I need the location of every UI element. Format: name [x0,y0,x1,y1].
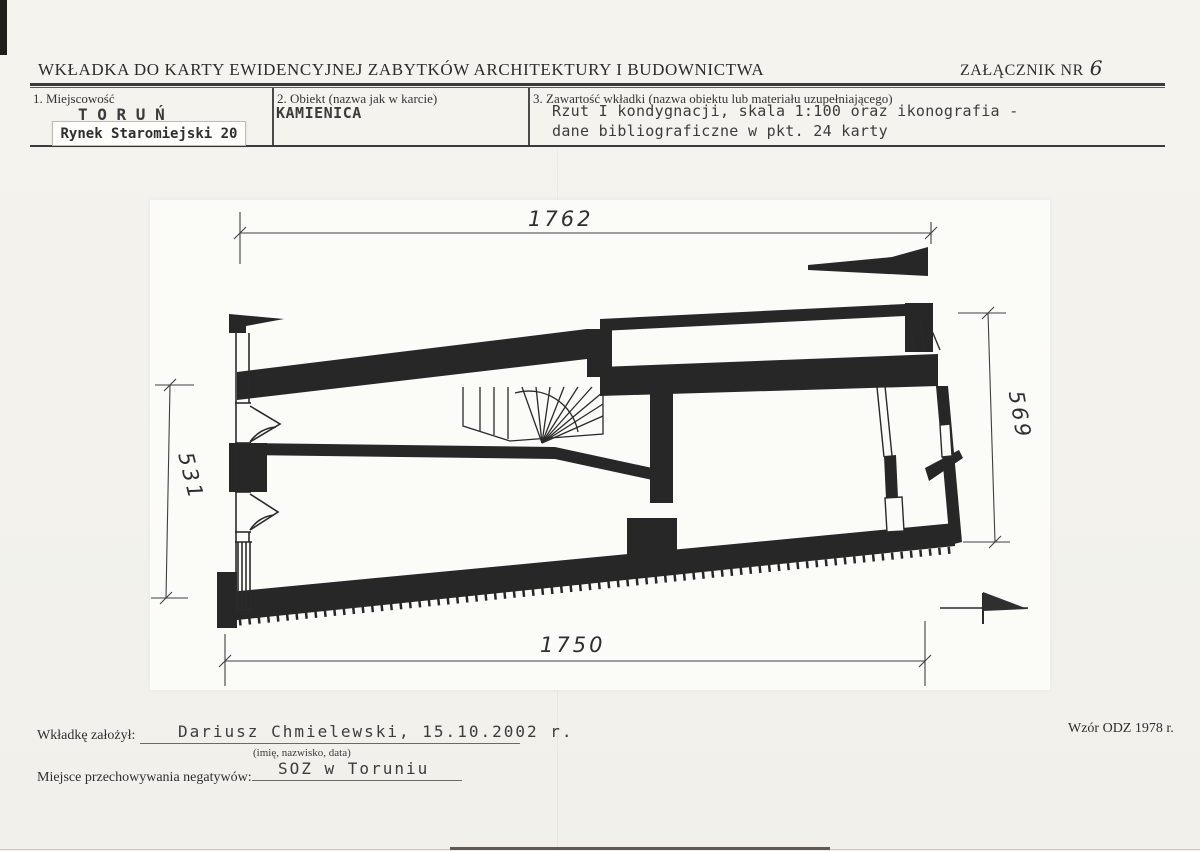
negatives-value: SOZ w Toruniu [278,759,429,778]
negatives-underline [252,780,462,781]
attachment-number-block: ZAŁĄCZNIK NR6 [960,56,1103,80]
dim-left: 531 [173,450,208,503]
field-locality-address: Rynek Staromiejski 20 [60,126,237,142]
wall-bottom-left-block [217,572,237,628]
column-separator-2 [528,88,530,145]
scan-edge-artifact [0,0,7,55]
scan-bottom-streak [450,847,830,850]
wall-bottom [218,523,955,622]
partition-solid-lower [888,530,904,547]
attachment-number-handwritten: 6 [1090,56,1103,80]
dim-bottom: 1750 [540,633,605,657]
floor-plan-drawing: 1762 1750 531 569 [150,200,1050,690]
header-rule-thin [30,87,1165,88]
template-note: Wzór ODZ 1978 r. [1068,721,1174,737]
field-object-value: KAMIENICA [276,104,362,122]
attachment-label: ZAŁĄCZNIK NR [960,62,1084,79]
author-label: Wkładkę założył: [37,728,135,744]
floor-plan-sheet: 1762 1750 531 569 [150,200,1050,690]
wall-middle-band [249,443,657,481]
dim-right: 569 [1004,389,1036,442]
author-underline [140,743,520,744]
right-windows [877,321,952,532]
document-title: WKŁADKA DO KARTY EWIDENCYJNEJ ZABYTKÓW A… [38,60,764,80]
wall-central [650,377,673,503]
author-value: Dariusz Chmielewski, 15.10.2002 r. [178,722,574,741]
partition-solid-upper [884,455,898,499]
wall-right-end-block [905,303,933,352]
wall-top-left-band [237,329,587,400]
staircase [463,387,603,443]
author-hint: (imię, nazwisko, data) [253,747,351,759]
column-separator-1 [272,88,274,145]
field-contents-line2: dane bibliograficzne w pkt. 24 karty [552,122,888,140]
wall-fragment-topright [808,247,928,276]
dim-top: 1762 [528,207,593,231]
negatives-label: Miejsce przechowywania negatywów: [37,770,252,786]
wall-top-right-band [600,304,905,331]
wall-left-junction [229,443,267,492]
wall-fragment-topleft [229,314,284,333]
field-contents-line1: Rzut I kondygnacji, skala 1:100 oraz iko… [552,102,1019,120]
field-locality-address-box: Rynek Staromiejski 20 [52,121,246,146]
wall-shapes [217,247,963,628]
north-arrow-icon [940,592,1028,624]
header-rule-thick [30,83,1165,86]
scanned-record-card: WKŁADKA DO KARTY EWIDENCYJNEJ ZABYTKÓW A… [0,0,1200,851]
